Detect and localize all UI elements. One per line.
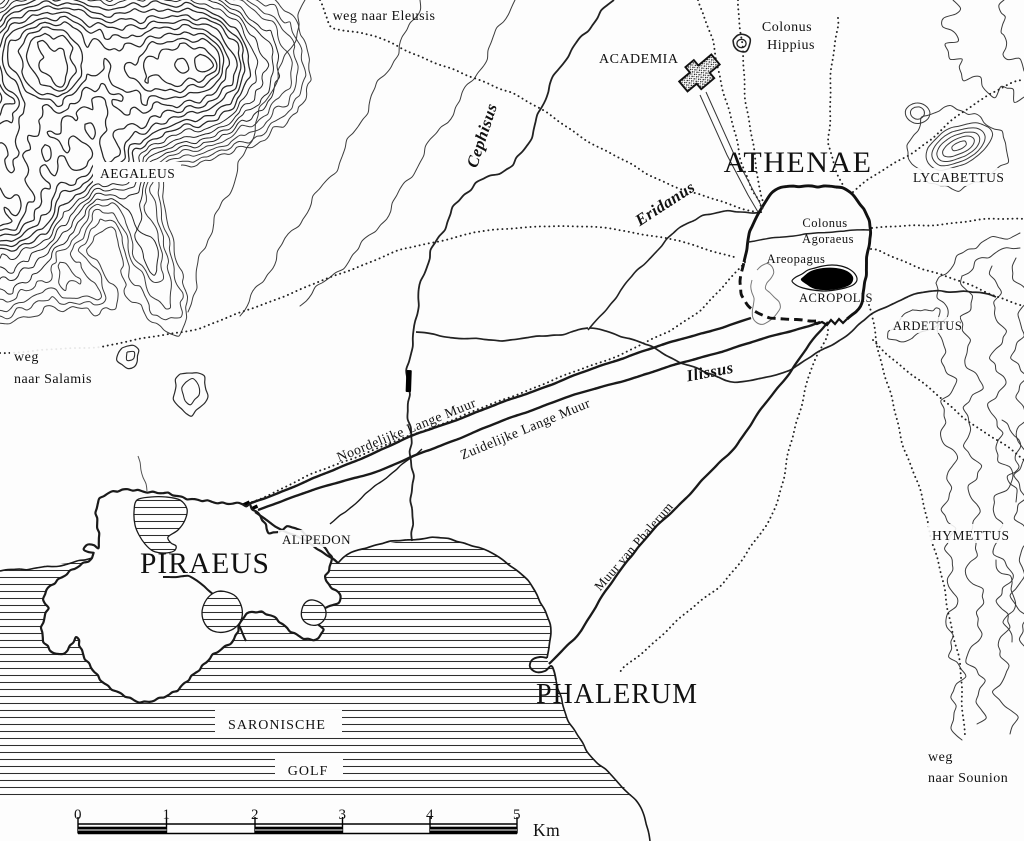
svg-text:naar Sounion: naar Sounion — [928, 771, 1008, 786]
svg-text:LYCABETTUS: LYCABETTUS — [913, 170, 1004, 185]
svg-text:ATHENAE: ATHENAE — [724, 146, 873, 179]
svg-text:5: 5 — [513, 807, 521, 823]
svg-text:ALIPEDON: ALIPEDON — [282, 532, 351, 547]
svg-text:2: 2 — [251, 807, 259, 823]
svg-text:Colonus: Colonus — [762, 20, 812, 35]
svg-text:Km: Km — [533, 820, 560, 840]
svg-text:HYMETTUS: HYMETTUS — [932, 528, 1010, 543]
svg-text:1: 1 — [163, 807, 171, 823]
svg-text:PHALERUM: PHALERUM — [536, 679, 698, 710]
svg-text:ACROPOLIS: ACROPOLIS — [799, 291, 873, 305]
svg-text:SARONISCHE: SARONISCHE — [228, 718, 326, 733]
svg-text:ARDETTUS: ARDETTUS — [893, 319, 962, 333]
svg-text:0: 0 — [74, 807, 82, 823]
svg-text:ACADEMIA: ACADEMIA — [599, 52, 679, 67]
svg-text:GOLF: GOLF — [288, 764, 329, 779]
svg-text:weg: weg — [14, 350, 39, 365]
svg-text:Agoraeus: Agoraeus — [802, 232, 854, 246]
svg-text:Areopagus: Areopagus — [767, 252, 826, 266]
svg-text:4: 4 — [426, 807, 434, 823]
svg-text:naar Salamis: naar Salamis — [14, 372, 92, 387]
svg-text:weg: weg — [928, 750, 953, 765]
svg-text:3: 3 — [339, 807, 347, 823]
svg-text:Colonus: Colonus — [802, 216, 847, 230]
svg-text:PIRAEUS: PIRAEUS — [140, 548, 270, 580]
svg-text:Hippius: Hippius — [767, 38, 815, 53]
svg-text:AEGALEUS: AEGALEUS — [100, 166, 175, 181]
svg-text:weg naar Eleusis: weg naar Eleusis — [333, 9, 436, 24]
